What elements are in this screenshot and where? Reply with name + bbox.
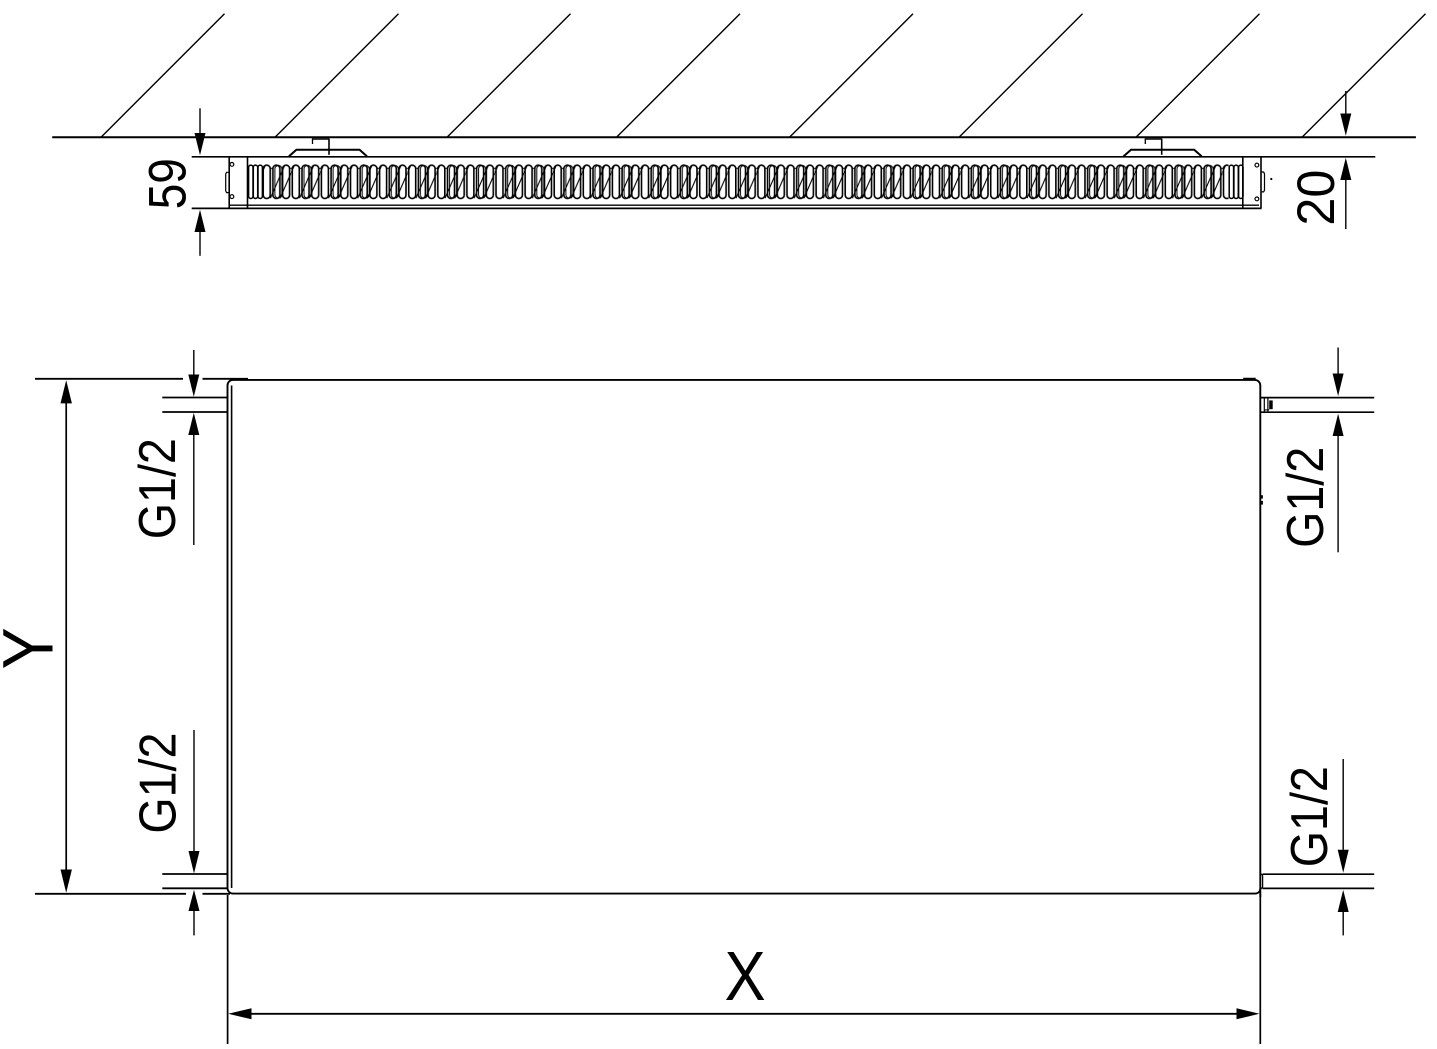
svg-text:20: 20 <box>1287 170 1346 226</box>
svg-text:G1/2: G1/2 <box>1281 766 1339 867</box>
svg-text:G1/2: G1/2 <box>129 438 187 539</box>
svg-text:Y: Y <box>0 627 69 669</box>
svg-text:X: X <box>725 937 766 1015</box>
svg-text:G1/2: G1/2 <box>1277 447 1335 548</box>
svg-text:G1/2: G1/2 <box>130 733 188 834</box>
svg-text:59: 59 <box>138 158 197 209</box>
